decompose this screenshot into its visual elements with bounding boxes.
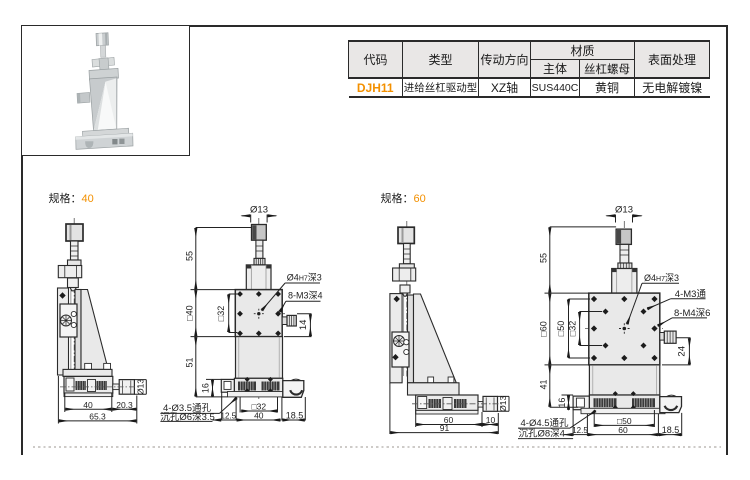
svg-text:20.3: 20.3: [116, 400, 133, 410]
svg-text:16: 16: [557, 398, 567, 408]
svg-text:□32: □32: [216, 306, 226, 321]
svg-text:40: 40: [254, 410, 264, 420]
svg-text:55: 55: [538, 253, 548, 263]
svg-text:55: 55: [185, 251, 195, 261]
svg-text:12.5: 12.5: [572, 426, 588, 435]
svg-text:沉孔Ø8深4: 沉孔Ø8深4: [519, 428, 565, 439]
svg-text:18.5: 18.5: [662, 425, 680, 435]
svg-text:□32: □32: [568, 321, 578, 336]
svg-text:Ø4H7深3: Ø4H7深3: [644, 273, 679, 283]
svg-text:10: 10: [486, 415, 496, 425]
svg-text:91: 91: [440, 423, 450, 433]
svg-text:16: 16: [201, 383, 211, 393]
svg-text:51: 51: [185, 357, 195, 367]
svg-text:60: 60: [618, 425, 628, 435]
svg-text:8-M3深4: 8-M3深4: [288, 290, 323, 300]
svg-text:8-M4深6: 8-M4深6: [674, 308, 710, 319]
svg-text:4-Ø4.5通孔: 4-Ø4.5通孔: [521, 418, 570, 429]
svg-text:Ø13: Ø13: [498, 396, 508, 412]
svg-text:□50: □50: [556, 321, 566, 336]
svg-text:Ø13: Ø13: [250, 205, 268, 216]
svg-text:Ø4H7深3: Ø4H7深3: [287, 273, 322, 283]
svg-text:12.5: 12.5: [221, 411, 237, 420]
svg-text:41: 41: [538, 379, 548, 389]
svg-text:□40: □40: [185, 305, 195, 320]
svg-text:Ø13: Ø13: [136, 379, 146, 395]
svg-text:40: 40: [83, 400, 93, 410]
svg-text:18.5: 18.5: [286, 410, 304, 420]
svg-text:24: 24: [677, 346, 688, 357]
svg-text:□60: □60: [538, 321, 548, 336]
svg-text:14: 14: [298, 320, 309, 331]
svg-text:65.3: 65.3: [89, 412, 106, 422]
svg-text:Ø13: Ø13: [615, 205, 633, 216]
